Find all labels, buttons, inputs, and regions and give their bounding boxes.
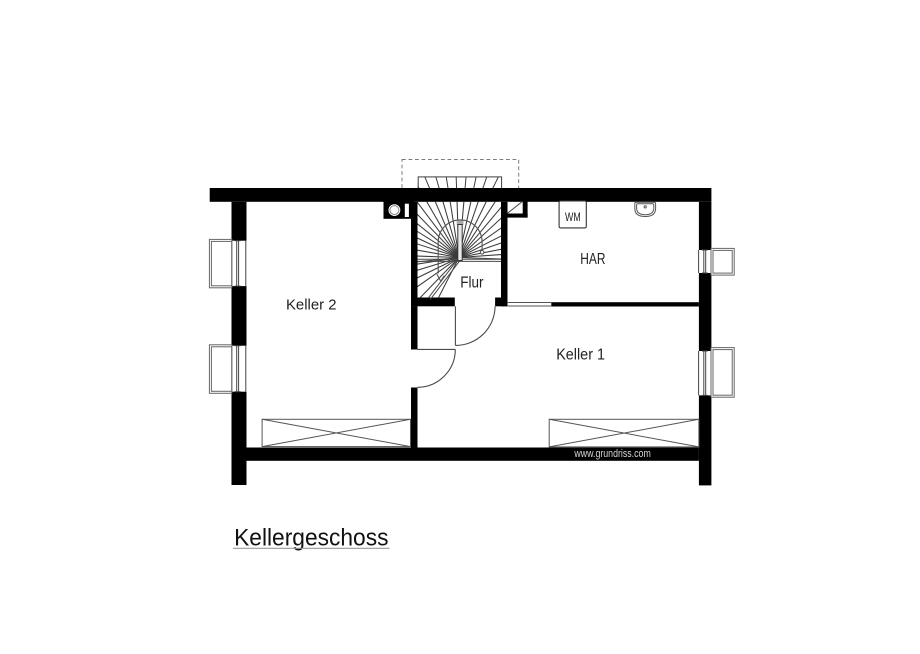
svg-text:HAR: HAR <box>580 251 605 268</box>
svg-text:Keller 2: Keller 2 <box>286 297 337 314</box>
svg-text:WM: WM <box>565 211 581 224</box>
svg-text:Keller 1: Keller 1 <box>556 346 605 363</box>
svg-text:www.grundriss.com: www.grundriss.com <box>574 448 651 460</box>
svg-text:Flur: Flur <box>460 274 483 291</box>
svg-text:Kellergeschoss: Kellergeschoss <box>234 524 388 551</box>
